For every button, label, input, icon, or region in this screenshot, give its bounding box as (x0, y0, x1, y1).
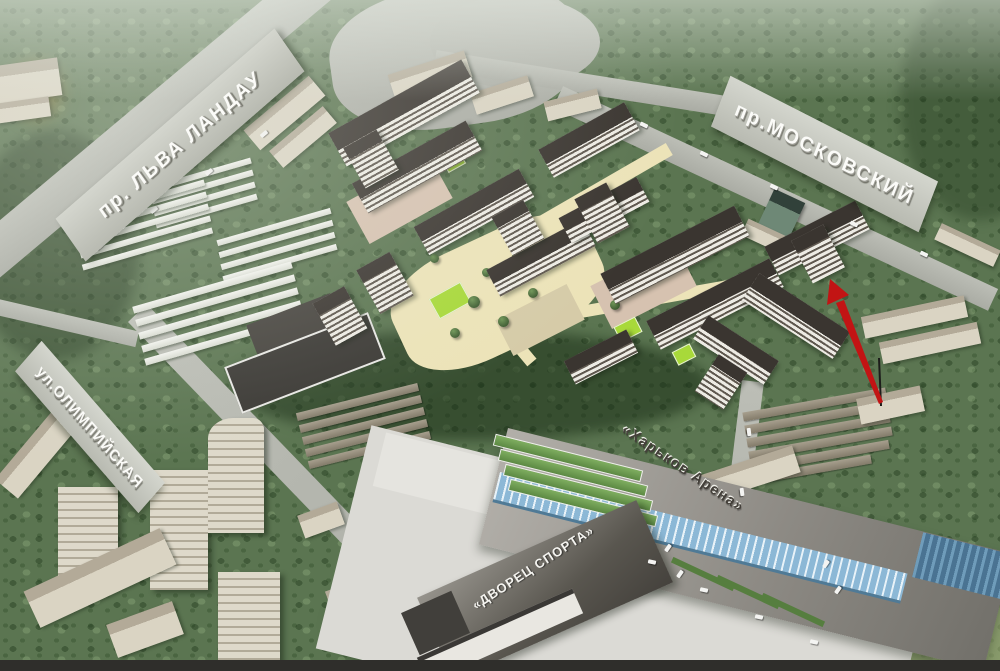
aerial-masterplan-render: пр. ЛЬВА ЛАНДАУ пр.МОСКОВСКИЙ ул.ОЛИМПИЙ… (0, 0, 1000, 671)
arrow-shaft (836, 300, 883, 404)
red-location-arrow (0, 0, 1000, 671)
arrow-head (827, 279, 849, 305)
bottom-edge-strip (0, 660, 1000, 671)
